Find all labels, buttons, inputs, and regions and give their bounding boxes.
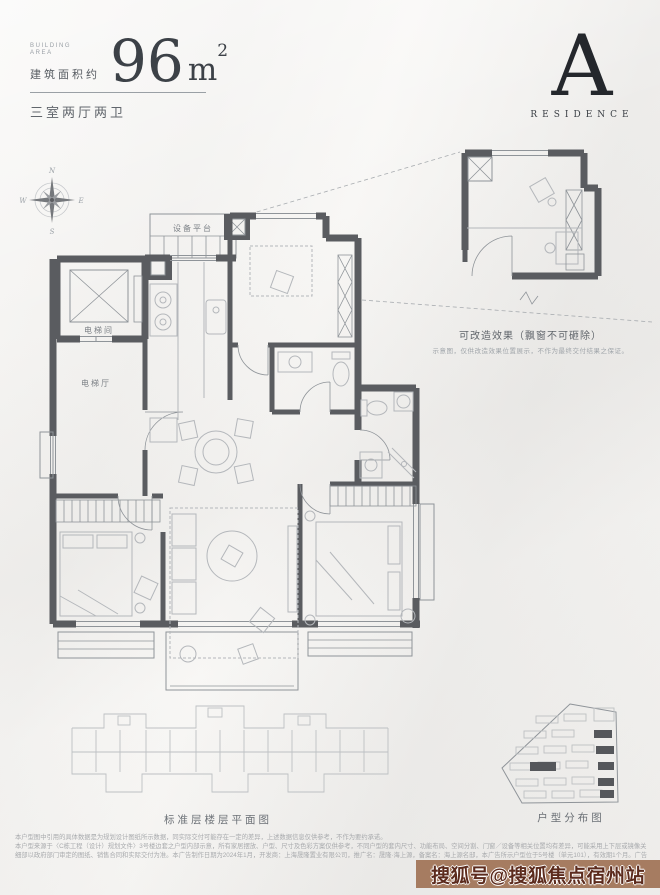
disclaimer-line2: 本户型来源于〈C栋工程（设计）规划文件〉3号楼边套之户型内部示意，所有家居摆放、… [15, 842, 647, 851]
bedroom-left-furniture [56, 500, 160, 616]
compass-e: E [77, 197, 83, 205]
study-furniture [250, 246, 352, 337]
watermark-text: 搜狐号@搜狐焦点宿州站 [431, 861, 645, 888]
bathroom1-fixtures [278, 352, 350, 386]
distribution-caption: 户型分布图 [498, 810, 644, 825]
watermark-banner: 搜狐号@搜狐焦点宿州站 [416, 860, 660, 888]
living-room-furniture [170, 508, 298, 664]
compass-n: N [48, 167, 56, 175]
inset-title: 可改造效果（飘窗不可砸除） [428, 327, 633, 342]
distribution-highlighted-units [530, 730, 614, 798]
equipment-platform-label: 设备平台 [173, 223, 213, 233]
kitchen-fixtures [150, 262, 226, 442]
floorplan-flyer-page: BUILDING AREA 建筑面积约 96 m2 三室两厅两卫 A RESID… [0, 0, 660, 895]
distribution-map [502, 704, 618, 803]
master-bedroom-furniture [305, 486, 416, 625]
compass-s: S [50, 228, 55, 236]
main-plan-walls [53, 214, 420, 628]
elevator-interior: 电梯间 电梯厅 [70, 270, 142, 388]
disclaimer-line1: 本户型图中引用的具体数据是为规划设计图纸所示数据，同实际交付可能存在一定的差异，… [15, 833, 647, 842]
disclaimer-line3: 细部以政府部门审定的图纸、销售合同和实际交付为准。本广告制作日期为2024年1月… [15, 851, 647, 860]
compass-w: W [19, 197, 27, 205]
equipment-platform: 设备平台 [150, 214, 236, 258]
bathroom2-fixtures [360, 392, 416, 478]
inset-note: 示意图，仅供改造效果位置展示，不作为最终交付结果之保证。 [418, 345, 643, 355]
dining-set [179, 419, 254, 486]
compass-icon: N S E W [19, 167, 83, 236]
standard-floor-drawing [72, 706, 388, 792]
elevator-hall-label: 电梯厅 [81, 378, 111, 388]
elevator-room-label: 电梯间 [84, 325, 114, 335]
disclaimer-text: 本户型图中引用的具体数据是为规划设计图纸所示数据，同实际交付可能存在一定的差异，… [15, 833, 647, 860]
zoom-leader-lines [250, 152, 652, 322]
standard-floor-caption: 标准层楼层平面图 [118, 812, 318, 827]
floor-plan-canvas: N S E W 设备平台 [0, 0, 660, 895]
inset-plan [465, 151, 598, 277]
